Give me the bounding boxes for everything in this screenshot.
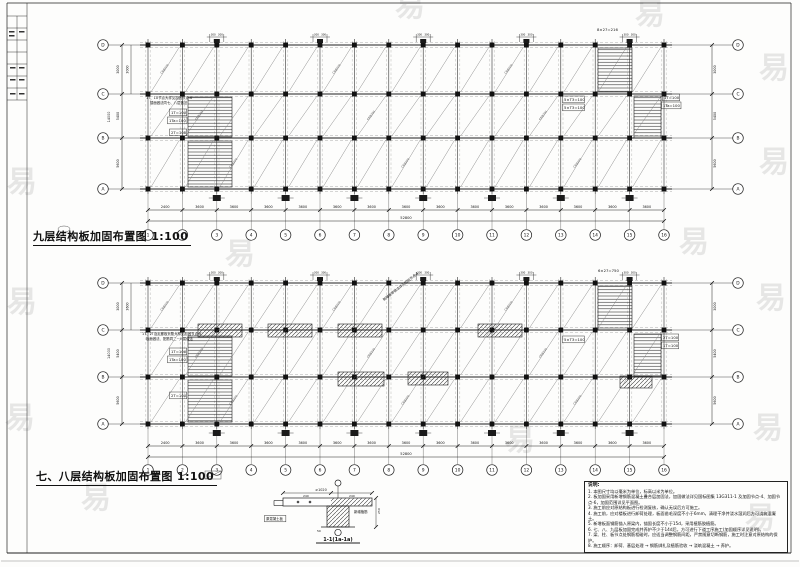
svg-text:C8@200: C8@200 — [331, 300, 341, 312]
svg-text:3000: 3000 — [116, 65, 120, 73]
svg-text:C8@200: C8@200 — [538, 347, 548, 359]
svg-text:C8@200: C8@200 — [538, 109, 548, 121]
svg-text:易: 易 — [759, 145, 789, 180]
notes-list: 1. 本图尺寸均以毫米为单位，标高以米为单位。2. 板加固采用新增钢筋混凝土叠合… — [588, 489, 784, 549]
svg-text:300: 300 — [218, 33, 223, 37]
svg-text:易: 易 — [7, 285, 37, 320]
svg-text:8×27=216: 8×27=216 — [597, 27, 618, 32]
svg-text:5400: 5400 — [116, 112, 120, 120]
svg-text:1T=100: 1T=100 — [664, 95, 680, 100]
svg-text:5: 5 — [284, 233, 287, 239]
svg-text:5600: 5600 — [713, 159, 717, 167]
svg-text:3600: 3600 — [230, 441, 239, 445]
svg-text:10: 10 — [455, 233, 461, 239]
svg-text:3600: 3600 — [539, 441, 548, 445]
svg-text:5400: 5400 — [713, 349, 717, 357]
svg-text:12: 12 — [524, 233, 530, 239]
svg-text:C8@200: C8@200 — [572, 157, 582, 169]
svg-text:3600: 3600 — [608, 205, 617, 209]
svg-text:易: 易 — [679, 225, 709, 260]
svg-text:易: 易 — [635, 0, 665, 32]
svg-text:C8@200: C8@200 — [400, 394, 410, 406]
svg-text:3600: 3600 — [264, 205, 273, 209]
svg-text:3600: 3600 — [264, 441, 273, 445]
svg-text:300: 300 — [314, 271, 319, 275]
svg-text:250: 250 — [377, 508, 381, 514]
svg-text:新增板带做法详见加固节点-4: 新增板带做法详见加固节点-4 — [382, 271, 420, 302]
svg-text:3000: 3000 — [713, 65, 717, 73]
watermarks: 易易易易易易易易易易易易易易 — [5, 0, 789, 536]
svg-text:3600: 3600 — [574, 441, 583, 445]
svg-text:易: 易 — [753, 411, 783, 446]
svg-text:300: 300 — [424, 33, 429, 37]
svg-text:2T=100: 2T=100 — [171, 130, 187, 135]
svg-text:2T=100: 2T=100 — [663, 335, 679, 340]
svg-text:240: 240 — [349, 494, 355, 498]
svg-text:5: 5 — [284, 468, 287, 474]
svg-text:13: 13 — [558, 233, 564, 239]
svg-text:9: 9 — [422, 233, 425, 239]
svg-text:1T=100: 1T=100 — [171, 110, 187, 115]
svg-text:1T=100: 1T=100 — [663, 343, 679, 348]
svg-text:14000: 14000 — [107, 348, 111, 359]
note-item: 4. 施工前，应对楼板进行卸荷处理，板面凿毛深度不小于6mm，清理干净并浇水湿润… — [588, 511, 784, 522]
svg-text:5×T3=100: 5×T3=100 — [564, 105, 585, 110]
svg-text:6×27=750: 6×27=750 — [598, 268, 619, 273]
svg-text:300: 300 — [211, 271, 216, 275]
svg-text:A: A — [101, 422, 104, 428]
svg-text:3600: 3600 — [230, 205, 239, 209]
svg-text:4: 4 — [250, 468, 253, 474]
svg-text:易: 易 — [81, 481, 111, 516]
svg-text:3600: 3600 — [539, 205, 548, 209]
svg-text:C8@200: C8@200 — [400, 157, 410, 169]
svg-text:3600: 3600 — [505, 441, 514, 445]
svg-text:3600: 3600 — [195, 441, 204, 445]
svg-text:3600: 3600 — [436, 205, 445, 209]
svg-text:300: 300 — [321, 271, 326, 275]
svg-text:易: 易 — [5, 401, 35, 436]
svg-text:3: 3 — [215, 233, 218, 239]
svg-text:10: 10 — [455, 468, 461, 474]
svg-text:300: 300 — [314, 33, 319, 37]
svg-text:3600: 3600 — [195, 205, 204, 209]
svg-text:52800: 52800 — [400, 452, 412, 456]
svg-text:新增植筋: 新增植筋 — [354, 509, 368, 514]
svg-text:1Ta=100: 1Ta=100 — [663, 103, 680, 108]
svg-text:3600: 3600 — [333, 205, 342, 209]
svg-text:16: 16 — [661, 468, 667, 474]
svg-text:B: B — [736, 375, 739, 381]
svg-text:5600: 5600 — [713, 396, 717, 404]
svg-text:易: 易 — [225, 237, 255, 272]
svg-text:C8@200: C8@200 — [366, 109, 376, 121]
svg-text:C: C — [101, 328, 104, 334]
svg-text:8: 8 — [387, 468, 390, 474]
svg-text:11: 11 — [489, 233, 495, 239]
svg-text:15: 15 — [627, 468, 633, 474]
svg-text:50: 50 — [317, 529, 321, 533]
svg-text:C8@200: C8@200 — [159, 300, 169, 312]
note-item: 7. 梁、柱、板节点处钢筋相碰时，应适当调整钢筋间距，严禁随意切断钢筋，施工时注… — [588, 532, 784, 543]
svg-text:300: 300 — [520, 271, 525, 275]
svg-text:3600: 3600 — [367, 441, 376, 445]
svg-text:300: 300 — [321, 33, 326, 37]
svg-text:1T=100: 1T=100 — [171, 349, 187, 354]
svg-text:C8@200: C8@200 — [572, 394, 582, 406]
svg-text:52800: 52800 — [400, 216, 412, 220]
svg-text:4: 4 — [250, 233, 253, 239]
svg-text:12: 12 — [524, 468, 530, 474]
svg-text:2400: 2400 — [161, 205, 170, 209]
svg-text:原混凝土板: 原混凝土板 — [266, 516, 284, 521]
svg-text:A: A — [101, 187, 104, 193]
svg-text:14: 14 — [592, 468, 598, 474]
svg-text:3600: 3600 — [125, 302, 129, 310]
svg-text:3600: 3600 — [367, 205, 376, 209]
svg-text:2400: 2400 — [161, 441, 170, 445]
svg-text:C8@200: C8@200 — [503, 300, 513, 312]
svg-text:300: 300 — [624, 271, 629, 275]
svg-text:2T=100: 2T=100 — [171, 393, 187, 398]
svg-text:3600: 3600 — [642, 441, 651, 445]
svg-text:7: 7 — [353, 233, 356, 239]
svg-text:300: 300 — [631, 33, 636, 37]
svg-text:300: 300 — [417, 33, 422, 37]
svg-text:300: 300 — [424, 271, 429, 275]
svg-text:5×T3=100: 5×T3=100 — [564, 97, 585, 102]
svg-text:5400: 5400 — [713, 112, 717, 120]
svg-text:3600: 3600 — [505, 205, 514, 209]
svg-text:11: 11 — [489, 468, 495, 474]
svg-text:5600: 5600 — [116, 396, 120, 404]
svg-text:300: 300 — [528, 33, 533, 37]
note-item: 2. 板加固采用新增钢筋混凝土叠合层加固法，加固做法详见国标图集 13G311-… — [588, 494, 784, 505]
svg-text:14000: 14000 — [107, 112, 111, 123]
svg-text:C8@200: C8@200 — [366, 347, 376, 359]
svg-text:240: 240 — [303, 494, 309, 498]
svg-text:1T、1U节点大样见加固节点-6: 1T、1U节点大样见加固节点-6 — [146, 95, 192, 100]
svg-text:板面做法、配筋同二~六层做法: 板面做法、配筋同二~六层做法 — [146, 336, 194, 341]
svg-text:C8@200: C8@200 — [331, 63, 341, 75]
svg-text:3600: 3600 — [470, 205, 479, 209]
svg-text:300: 300 — [624, 33, 629, 37]
svg-text:B: B — [101, 136, 104, 142]
svg-text:B: B — [101, 375, 104, 381]
svg-text:3600: 3600 — [608, 441, 617, 445]
svg-text:300: 300 — [520, 33, 525, 37]
svg-text:C: C — [736, 92, 739, 98]
plan-title-ninth-floor: 九层结构板加固布置图 1:100 — [33, 228, 191, 246]
svg-text:14: 14 — [592, 233, 598, 239]
plan-title-seventh-eighth-floor: 七、八层结构板加固布置图 1:100 — [36, 468, 217, 486]
svg-text:3600: 3600 — [402, 441, 411, 445]
svg-text:6: 6 — [319, 233, 322, 239]
svg-text:A: A — [736, 422, 739, 428]
svg-text:易: 易 — [756, 281, 786, 316]
svg-text:300: 300 — [211, 33, 216, 37]
svg-text:1Ta=100: 1Ta=100 — [169, 118, 186, 123]
svg-text:≥1020: ≥1020 — [315, 488, 326, 492]
svg-text:300: 300 — [528, 271, 533, 275]
svg-text:300: 300 — [631, 271, 636, 275]
section-detail: ≥1020240240原混凝土板新增植筋502501-1(1a-1a) — [265, 480, 382, 543]
svg-text:16: 16 — [661, 233, 667, 239]
drawing-sheet: 易易易易易易易易易易易易易易C8@200C8@200C8@200C8@200C8… — [0, 0, 800, 567]
svg-text:3600: 3600 — [574, 205, 583, 209]
svg-text:1T、2T及走廊板负筋大样见加固节点-6: 1T、2T及走廊板负筋大样见加固节点-6 — [142, 331, 201, 336]
svg-text:9: 9 — [422, 468, 425, 474]
svg-text:13: 13 — [558, 468, 564, 474]
svg-text:8: 8 — [387, 233, 390, 239]
svg-text:3600: 3600 — [298, 205, 307, 209]
svg-text:3600: 3600 — [298, 441, 307, 445]
svg-text:A: A — [736, 187, 739, 193]
note-item: 8. 施工顺序：卸荷、基层处理 → 钢筋绑扎及植筋验收 → 浇筑混凝土 → 养护… — [588, 543, 784, 548]
svg-text:15: 15 — [627, 233, 633, 239]
svg-text:5600: 5600 — [116, 159, 120, 167]
notes-block: 说明: 1. 本图尺寸均以毫米为单位，标高以米为单位。2. 板加固采用新增钢筋混… — [584, 481, 788, 553]
svg-text:3600: 3600 — [436, 441, 445, 445]
svg-text:C8@200: C8@200 — [503, 63, 513, 75]
revision-table — [7, 16, 27, 100]
svg-text:易: 易 — [759, 51, 789, 86]
svg-text:C: C — [101, 92, 104, 98]
svg-text:C: C — [736, 328, 739, 334]
svg-text:3600: 3600 — [642, 205, 651, 209]
svg-text:B: B — [736, 136, 739, 142]
svg-text:6: 6 — [319, 468, 322, 474]
svg-text:C8@200: C8@200 — [159, 63, 169, 75]
svg-text:楼面做法同七、八层做法: 楼面做法同七、八层做法 — [150, 100, 188, 105]
svg-text:1-1(1a-1a): 1-1(1a-1a) — [323, 537, 352, 543]
svg-text:3600: 3600 — [402, 205, 411, 209]
svg-text:5×T3=100: 5×T3=100 — [564, 337, 585, 342]
svg-text:易: 易 — [7, 165, 37, 200]
svg-text:5400: 5400 — [116, 349, 120, 357]
svg-text:3000: 3000 — [125, 65, 129, 73]
svg-text:易: 易 — [395, 0, 425, 24]
svg-text:3000: 3000 — [116, 302, 120, 310]
svg-text:7: 7 — [353, 468, 356, 474]
svg-text:3000: 3000 — [713, 302, 717, 310]
svg-text:300: 300 — [218, 271, 223, 275]
svg-text:3600: 3600 — [470, 441, 479, 445]
svg-text:3600: 3600 — [333, 441, 342, 445]
svg-text:1Ta=100: 1Ta=100 — [169, 357, 186, 362]
